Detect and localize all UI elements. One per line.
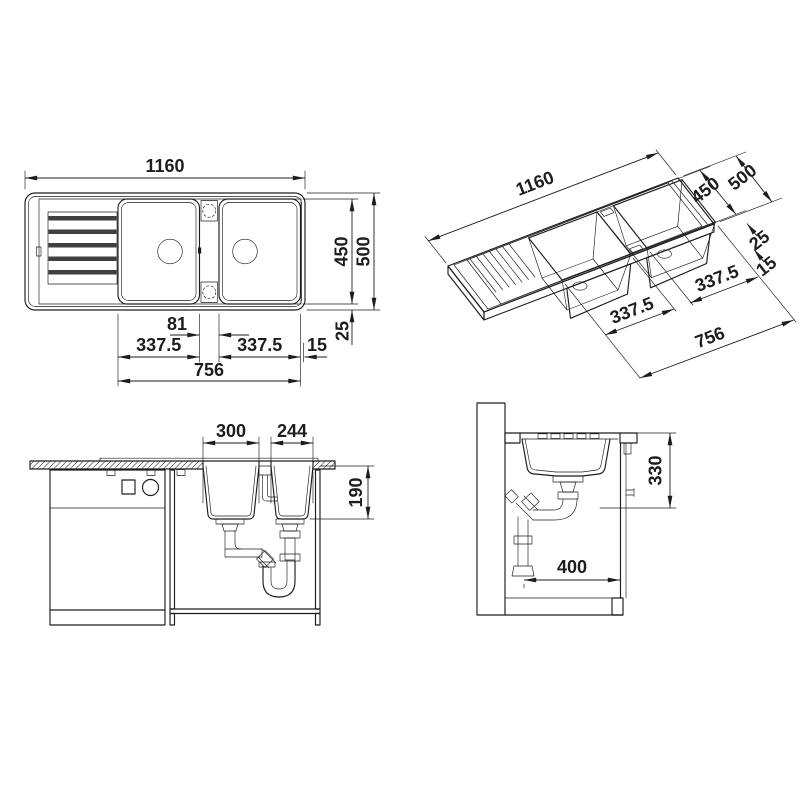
faucet-block: [259, 466, 271, 475]
dim-depth-below-worktop: 330: [646, 455, 666, 485]
control-square-icon: [122, 480, 135, 494]
sink-outline: [25, 193, 305, 310]
dim-bowl1-width: 337.5: [136, 335, 181, 355]
dim-side-gap-3d: 15: [752, 252, 780, 280]
union-nut: [522, 493, 540, 511]
front-view: 300 244 190: [30, 421, 374, 625]
dim-bowls-total-3d: 756: [692, 323, 727, 352]
sink-technical-drawing: 1160 450 500 25 15 81 337.5 337.5 756: [0, 0, 800, 800]
dim-side-gap: 15: [307, 335, 327, 355]
dim-tap-strip: 81: [167, 314, 187, 334]
tap-hole-rear: [203, 204, 216, 217]
bowl-1: [118, 199, 200, 304]
tap-hole-rear-3d: [600, 208, 614, 216]
dim-overall-length-3d: 1160: [513, 167, 557, 200]
drain-1: [158, 239, 183, 264]
sink-base-cabinet: [170, 470, 320, 625]
dim-bowl-depth: 190: [346, 477, 366, 507]
worktop: [30, 458, 335, 475]
dim-bowl1-top-width: 300: [216, 421, 246, 441]
bowl-cross-section: [522, 439, 610, 476]
section-view: 330 400: [477, 403, 676, 615]
dishwasher-cabinet: [50, 470, 165, 625]
drainboard-3d: [470, 244, 535, 292]
dim-inner-width: 450: [332, 236, 352, 266]
tap-strip-3d: [597, 206, 647, 255]
worktop-section: [505, 433, 637, 454]
drain-2: [233, 239, 258, 264]
dim-bowls-total: 756: [194, 360, 224, 380]
dim-overall-width: 500: [354, 236, 374, 266]
bowls-section: [203, 461, 313, 519]
wall-outlet-nut: [505, 490, 518, 503]
drawing-sheet: 1160 450 500 25 15 81 337.5 337.5 756: [0, 0, 800, 800]
dim-bowl2-top-width: 244: [277, 421, 307, 441]
top-view: 1160 450 500 25 15 81 337.5 337.5 756: [25, 156, 380, 386]
dim-overall-length: 1160: [145, 156, 184, 176]
drainboard: [37, 212, 118, 284]
plumbing-front: [216, 519, 304, 597]
dim-inner-width-3d: 450: [687, 173, 723, 207]
union-nut: [514, 536, 532, 544]
union-nut: [558, 492, 578, 499]
cabinet-section: [505, 443, 634, 615]
union-nut: [280, 531, 300, 538]
wall: [477, 403, 505, 615]
tap-strip: [198, 201, 218, 303]
dim-bowl2-width: 337.5: [237, 335, 282, 355]
bowl-1-3d: [529, 212, 631, 310]
dim-overall-width-3d: 500: [724, 160, 760, 194]
dim-rim-margin-3d: 25: [745, 226, 773, 254]
dim-rim-margin: 25: [333, 321, 353, 341]
sink-body-3d: [448, 178, 714, 320]
tap-hole-front: [203, 286, 216, 299]
perspective-view: 1160 500 450 25 15 337.5 337.5 756: [425, 150, 796, 378]
dim-bowl1-width-3d: 337.5: [607, 293, 656, 328]
dim-wall-to-front: 400: [557, 557, 587, 577]
bowl-2: [219, 199, 301, 304]
clamp-tab: [177, 470, 185, 476]
control-dial-icon: [143, 480, 159, 496]
